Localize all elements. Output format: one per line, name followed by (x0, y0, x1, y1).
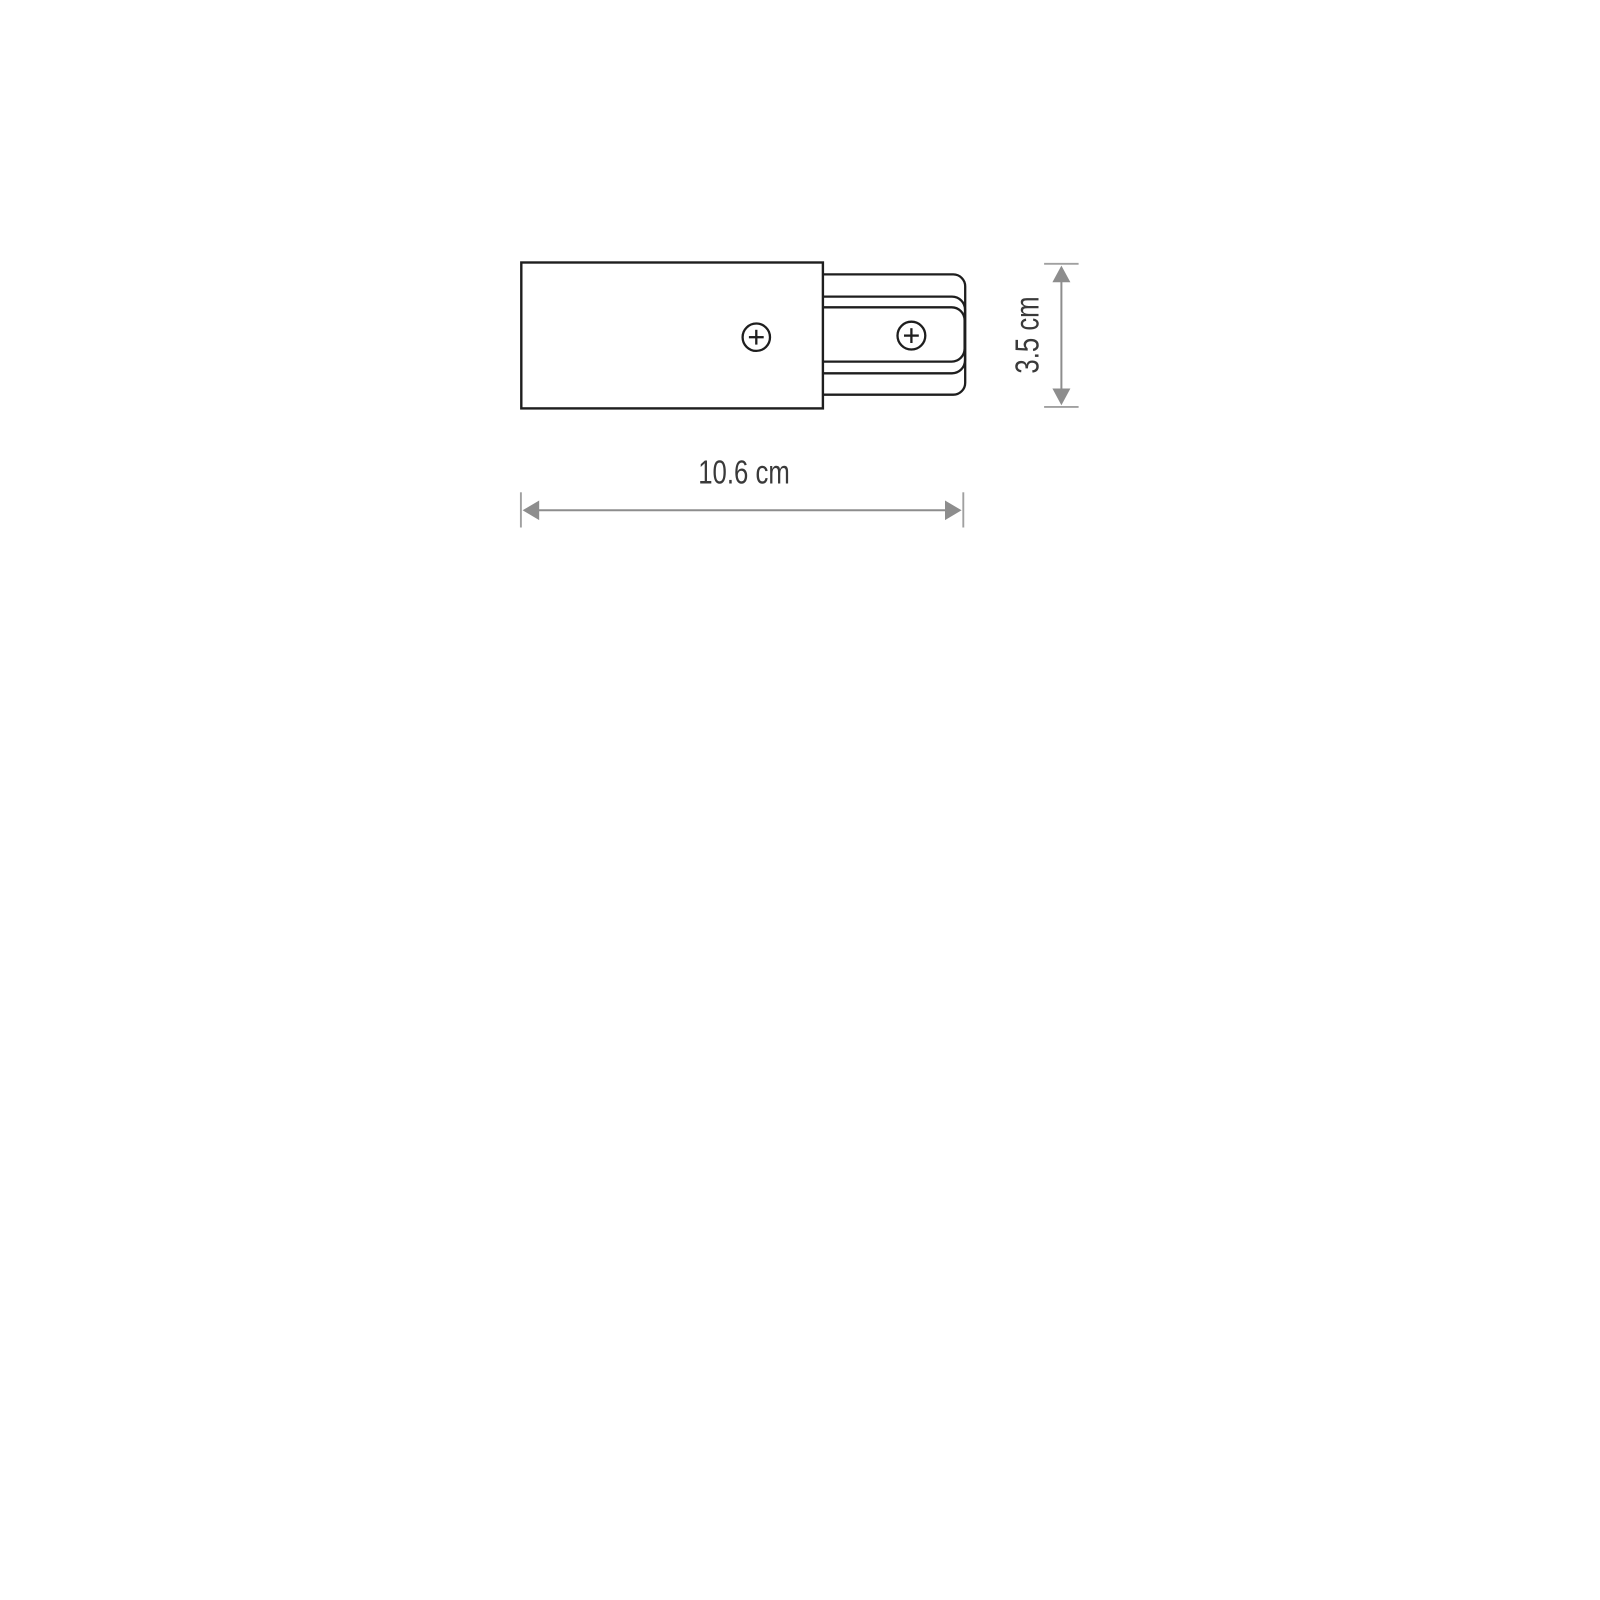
svg-text:3.5 cm: 3.5 cm (1010, 296, 1047, 373)
svg-text:10.6 cm: 10.6 cm (698, 455, 790, 492)
